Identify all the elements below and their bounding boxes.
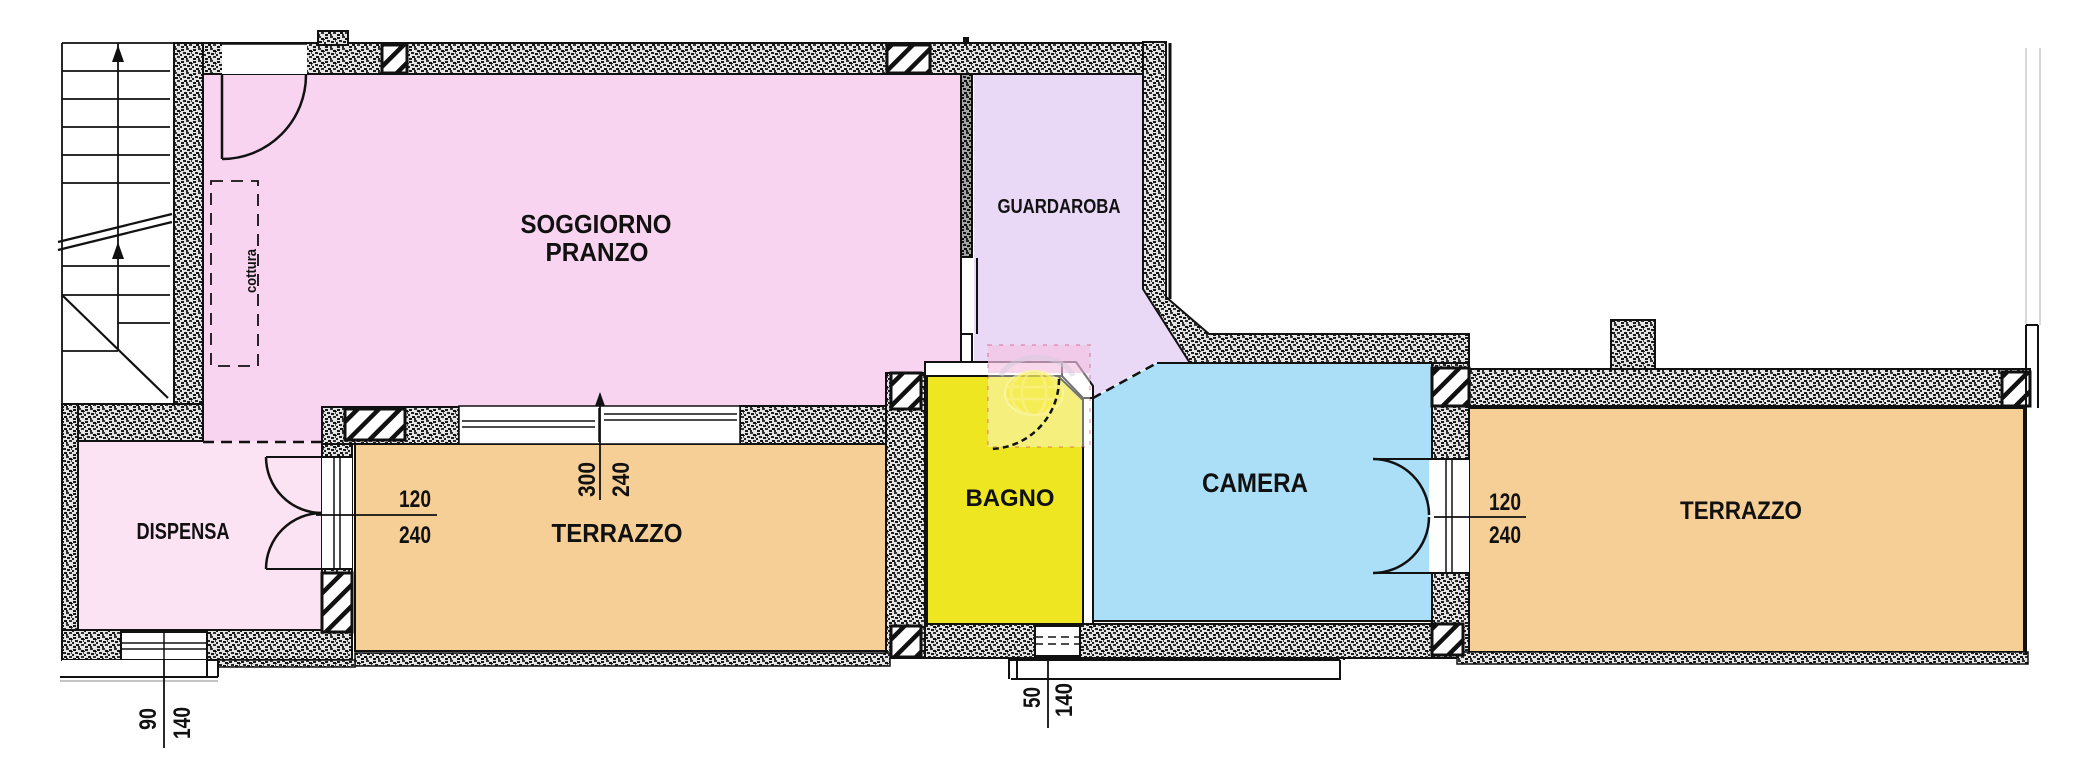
svg-text:240: 240 <box>1489 522 1521 549</box>
svg-text:90: 90 <box>135 708 162 730</box>
svg-text:TERRAZZO: TERRAZZO <box>552 518 683 548</box>
svg-text:300: 300 <box>574 462 601 497</box>
svg-text:50: 50 <box>1019 687 1046 708</box>
svg-text:PRANZO: PRANZO <box>546 237 649 267</box>
svg-text:DISPENSA: DISPENSA <box>137 518 230 544</box>
svg-text:120: 120 <box>399 486 431 513</box>
svg-text:240: 240 <box>608 462 635 497</box>
svg-text:CAMERA: CAMERA <box>1202 468 1308 498</box>
svg-text:140: 140 <box>169 707 196 739</box>
svg-text:BAGNO: BAGNO <box>966 485 1055 512</box>
svg-text:240: 240 <box>399 522 431 549</box>
svg-text:140: 140 <box>1051 683 1078 717</box>
svg-text:GUARDAROBA: GUARDAROBA <box>998 196 1121 218</box>
svg-text:cottura: cottura <box>243 248 260 293</box>
svg-text:TERRAZZO: TERRAZZO <box>1680 497 1802 525</box>
svg-text:120: 120 <box>1489 489 1521 516</box>
svg-text:SOGGIORNO: SOGGIORNO <box>521 209 672 239</box>
